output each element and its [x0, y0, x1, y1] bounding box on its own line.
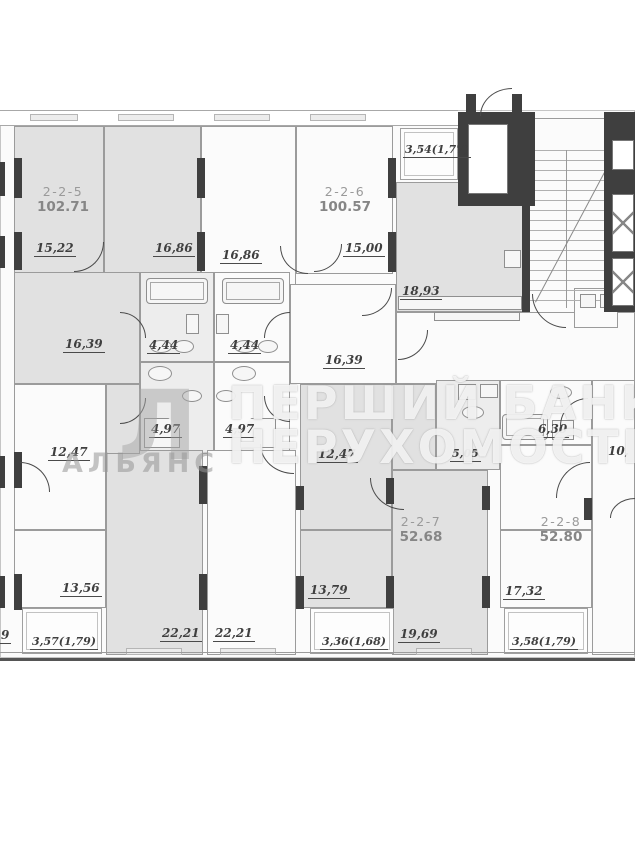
area-label-18-93: 18,93	[400, 284, 442, 300]
unit-area: 52.68	[386, 529, 456, 545]
facade-line	[0, 652, 635, 653]
room-22-21-b	[207, 450, 296, 655]
unit-label-2-2-5: 2-2-5 102.71	[28, 184, 98, 215]
wall-segment	[14, 158, 22, 198]
wall-segment	[388, 158, 396, 198]
window	[118, 114, 174, 121]
wall-segment	[197, 232, 205, 271]
area-label-19-69: 19,69	[398, 627, 440, 643]
window	[310, 114, 366, 121]
kitchen-sink	[504, 250, 521, 268]
door-jamb	[512, 94, 522, 114]
wall-segment	[386, 576, 394, 608]
water-heater	[216, 314, 229, 334]
bathtub	[222, 278, 284, 304]
area-label-16-86-b: 16,86	[220, 248, 262, 264]
door-entrance-top	[480, 88, 512, 116]
wall-segment	[14, 232, 22, 270]
watermark-line2: НЕРУХОМОСТІ	[228, 420, 635, 474]
area-label-16-86-a: 16,86	[153, 241, 195, 257]
area-label-22-21-a: 22,21	[160, 626, 202, 642]
area-label-15-22: 15,22	[34, 241, 76, 257]
wall-segment	[482, 486, 490, 510]
area-label-3-36: 3,36(1,68)	[320, 635, 388, 650]
unit-area: 102.71	[28, 199, 98, 215]
unit-area: 100.57	[310, 199, 380, 215]
area-label-17-32: 17,32	[503, 584, 545, 600]
unit-area: 52.80	[526, 529, 596, 545]
wall-segment	[296, 576, 304, 609]
wall-segment	[14, 574, 22, 610]
wall-segment	[197, 158, 205, 198]
area-label-22-21-b: 22,21	[213, 626, 255, 642]
area-label-4-44-b: 4,44	[228, 338, 261, 354]
door-jamb	[466, 94, 476, 114]
wall-segment	[296, 486, 304, 510]
wall-segment	[0, 162, 5, 196]
area-label-4-44-a: 4,44	[147, 338, 180, 354]
area-label-3-54: 3,54(1,77)	[403, 143, 471, 158]
shaft-box	[612, 140, 634, 170]
unit-id: 2-2-7	[386, 514, 456, 529]
area-label-16-39-b: 16,39	[323, 353, 365, 369]
area-label-13-56: 13,56	[60, 581, 102, 597]
area-label-3-57: 3,57(1,79)	[30, 635, 98, 650]
wall-segment	[199, 574, 207, 610]
area-label-partial-left: 9	[0, 628, 11, 644]
stairs-direction-line	[535, 154, 615, 303]
bathtub	[146, 278, 208, 304]
elevator-1	[612, 194, 634, 252]
wall-segment	[482, 576, 490, 608]
service-sink	[580, 294, 596, 308]
unit-id: 2-2-8	[526, 514, 596, 529]
watermark-brand: АЛЬЯНС	[62, 448, 219, 479]
kitchen-appliance	[434, 312, 520, 321]
wall-segment	[0, 456, 5, 488]
stairs-divider	[566, 150, 567, 308]
facade-base-line	[0, 658, 635, 661]
unit-id: 2-2-5	[28, 184, 98, 199]
area-label-13-79: 13,79	[308, 583, 350, 599]
wall-segment	[0, 576, 5, 608]
floor-plan: 2-2-5 102.71 2-2-6 100.57 2-2-7 52.68 2-…	[0, 0, 635, 849]
area-label-16-39-a: 16,39	[63, 337, 105, 353]
unit-label-2-2-7: 2-2-7 52.68	[386, 514, 456, 545]
wall-segment	[522, 184, 530, 312]
stairs	[527, 150, 607, 308]
unit-label-2-2-6: 2-2-6 100.57	[310, 184, 380, 215]
window	[214, 114, 270, 121]
area-label-3-58: 3,58(1,79)	[510, 635, 578, 650]
elevator-shaft	[468, 124, 508, 194]
wall-segment	[0, 236, 5, 268]
unit-id: 2-2-6	[310, 184, 380, 199]
area-label-15-00: 15,00	[343, 241, 385, 257]
room-16-86-a	[104, 126, 201, 284]
window	[30, 114, 78, 121]
wall-segment	[388, 232, 396, 272]
water-heater	[186, 314, 199, 334]
unit-label-2-2-8: 2-2-8 52.80	[526, 514, 596, 545]
elevator-2	[612, 258, 634, 306]
